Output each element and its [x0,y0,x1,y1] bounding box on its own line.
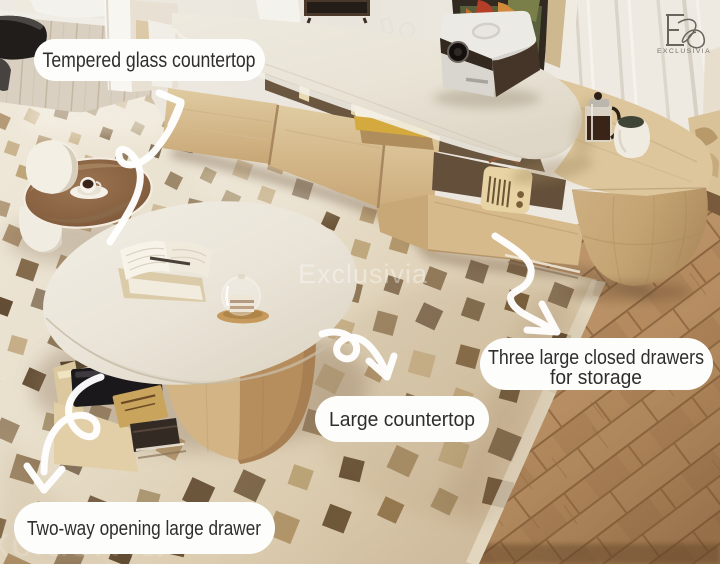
svg-text:Three large closed drawers: Three large closed drawers [488,347,704,369]
svg-text:Tempered glass countertop: Tempered glass countertop [43,49,256,72]
svg-text:for storage: for storage [550,367,642,389]
svg-text:EXCLUSIVIA: EXCLUSIVIA [657,48,711,55]
svg-text:Large countertop: Large countertop [329,409,475,431]
svg-text:Exclusivia: Exclusivia [298,259,428,289]
svg-text:Two-way opening large drawer: Two-way opening large drawer [27,518,261,540]
